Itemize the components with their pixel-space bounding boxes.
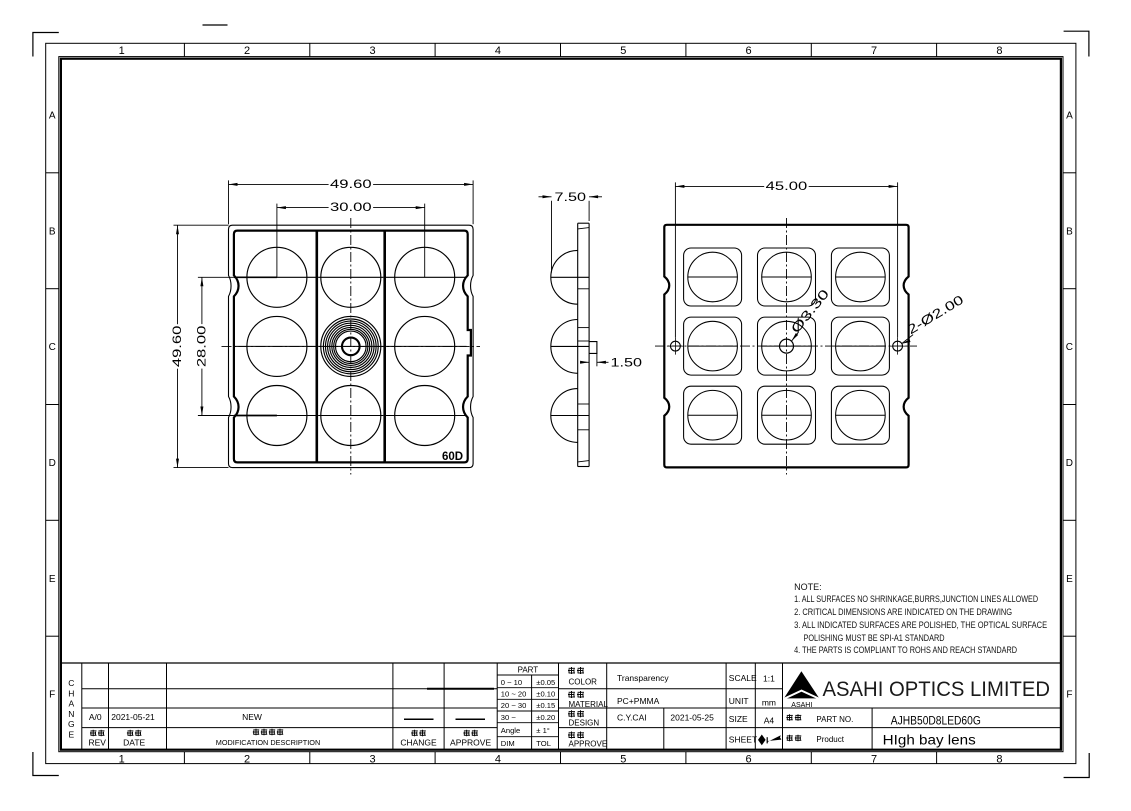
svg-text:49.60: 49.60: [330, 177, 372, 191]
svg-text:SCALE: SCALE: [729, 673, 757, 683]
svg-text:ASAHI OPTICS LIMITED: ASAHI OPTICS LIMITED: [823, 677, 1051, 701]
svg-text:AJHB50D8LED60G: AJHB50D8LED60G: [891, 715, 981, 727]
svg-text:REV: REV: [88, 738, 106, 748]
svg-text:H: H: [68, 688, 74, 698]
svg-text:SIZE: SIZE: [729, 714, 748, 724]
svg-text:4: 4: [495, 45, 501, 57]
svg-text:8: 8: [996, 45, 1002, 57]
svg-text:A: A: [1066, 110, 1073, 121]
svg-text:CHANGE: CHANGE: [400, 738, 437, 748]
svg-text:D: D: [1066, 458, 1073, 469]
svg-text:TOL: TOL: [536, 739, 551, 748]
svg-text:0 ~ 10: 0 ~ 10: [501, 678, 522, 687]
svg-text:E: E: [49, 574, 56, 585]
svg-text:C: C: [49, 342, 56, 353]
svg-text:± 1°: ± 1°: [536, 726, 550, 735]
svg-text:2021-05-25: 2021-05-25: [670, 712, 714, 722]
svg-text:1.50: 1.50: [611, 356, 643, 370]
svg-text:N: N: [68, 709, 74, 719]
svg-text:C: C: [1066, 342, 1073, 353]
svg-text:3: 3: [369, 45, 375, 57]
svg-text:MODIFICATION DESCRIPTION: MODIFICATION DESCRIPTION: [216, 738, 320, 747]
svg-text:5: 5: [620, 45, 626, 57]
svg-text:G: G: [68, 719, 75, 729]
svg-text:±0.15: ±0.15: [536, 701, 555, 710]
svg-text:DESIGN: DESIGN: [569, 719, 600, 728]
svg-text:D: D: [49, 458, 56, 469]
svg-text:1. ALL SURFACES NO SHRINKAGE,B: 1. ALL SURFACES NO SHRINKAGE,BURRS,JUNCT…: [794, 594, 1038, 604]
svg-text:6: 6: [746, 753, 752, 765]
svg-text:NEW: NEW: [242, 712, 262, 722]
svg-text:MATERIAL: MATERIAL: [569, 700, 609, 709]
svg-text:±0.05: ±0.05: [536, 678, 555, 687]
svg-text:C.Y.CAI: C.Y.CAI: [617, 712, 647, 722]
svg-text:10 ~ 20: 10 ~ 20: [501, 690, 527, 699]
svg-text:mm: mm: [762, 697, 776, 707]
svg-text:Product: Product: [816, 735, 844, 744]
svg-text:E: E: [68, 730, 74, 740]
svg-text:B: B: [49, 226, 56, 237]
svg-text:±0.10: ±0.10: [536, 690, 555, 699]
svg-text:A4: A4: [764, 715, 775, 725]
svg-text:28.00: 28.00: [195, 325, 209, 367]
svg-text:PC+PMMA: PC+PMMA: [617, 696, 660, 706]
svg-text:3: 3: [369, 753, 375, 765]
svg-text:3. ALL INDICATED SURFACES ARE: 3. ALL INDICATED SURFACES ARE POLISHED, …: [794, 620, 1047, 630]
svg-text:2: 2: [244, 753, 250, 765]
svg-text:8: 8: [996, 753, 1002, 765]
svg-text:2021-05-21: 2021-05-21: [111, 712, 155, 722]
svg-text:7: 7: [871, 753, 877, 765]
svg-text:7.50: 7.50: [555, 190, 587, 204]
svg-text:ASAHI: ASAHI: [791, 702, 812, 709]
svg-text:49.60: 49.60: [170, 325, 184, 367]
svg-text:1:1: 1:1: [763, 673, 775, 683]
svg-text:7: 7: [871, 45, 877, 57]
svg-text:6: 6: [746, 45, 752, 57]
svg-text:DATE: DATE: [123, 738, 145, 748]
svg-text:NOTE:: NOTE:: [794, 582, 822, 592]
svg-text:PART: PART: [518, 666, 539, 675]
svg-text:45.00: 45.00: [766, 179, 808, 193]
svg-text:4. THE PARTS IS COMPLIANT TO R: 4. THE PARTS IS COMPLIANT TO ROHS AND RE…: [794, 645, 1017, 655]
svg-text:HIgh bay lens: HIgh bay lens: [883, 733, 976, 748]
svg-text:30.00: 30.00: [330, 200, 372, 214]
svg-text:30 ~: 30 ~: [501, 713, 517, 722]
svg-text:±0.20: ±0.20: [536, 713, 555, 722]
svg-text:UNIT: UNIT: [729, 696, 749, 706]
svg-text:APPROVE: APPROVE: [450, 738, 491, 748]
svg-text:Angle: Angle: [501, 726, 520, 735]
svg-text:F: F: [49, 690, 55, 701]
svg-text:E: E: [1066, 574, 1073, 585]
svg-text:5: 5: [620, 753, 626, 765]
svg-text:Transparency: Transparency: [617, 673, 669, 683]
svg-text:A/0: A/0: [89, 712, 102, 722]
svg-text:B: B: [1066, 226, 1073, 237]
svg-text:4: 4: [495, 753, 501, 765]
svg-text:F: F: [1066, 690, 1072, 701]
svg-text:APPROVE: APPROVE: [569, 740, 608, 749]
svg-text:PART NO.: PART NO.: [816, 715, 853, 724]
svg-text:2. CRITICAL DIMENSIONS ARE IND: 2. CRITICAL DIMENSIONS ARE INDICATED ON …: [794, 607, 1012, 617]
svg-text:1: 1: [119, 753, 125, 765]
svg-text:C: C: [68, 678, 74, 688]
svg-text:DIM: DIM: [501, 739, 515, 748]
svg-text:SHEET: SHEET: [729, 734, 757, 744]
svg-text:2: 2: [244, 45, 250, 57]
svg-text:A: A: [68, 699, 74, 709]
svg-text:20 ~ 30: 20 ~ 30: [501, 701, 527, 710]
svg-text:1: 1: [119, 45, 125, 57]
svg-text:60D: 60D: [442, 451, 463, 463]
svg-text:A: A: [49, 110, 56, 121]
svg-text:COLOR: COLOR: [569, 678, 598, 687]
svg-text:POLISHING MUST BE SPI-A1 STAND: POLISHING MUST BE SPI-A1 STANDARD: [804, 633, 945, 643]
